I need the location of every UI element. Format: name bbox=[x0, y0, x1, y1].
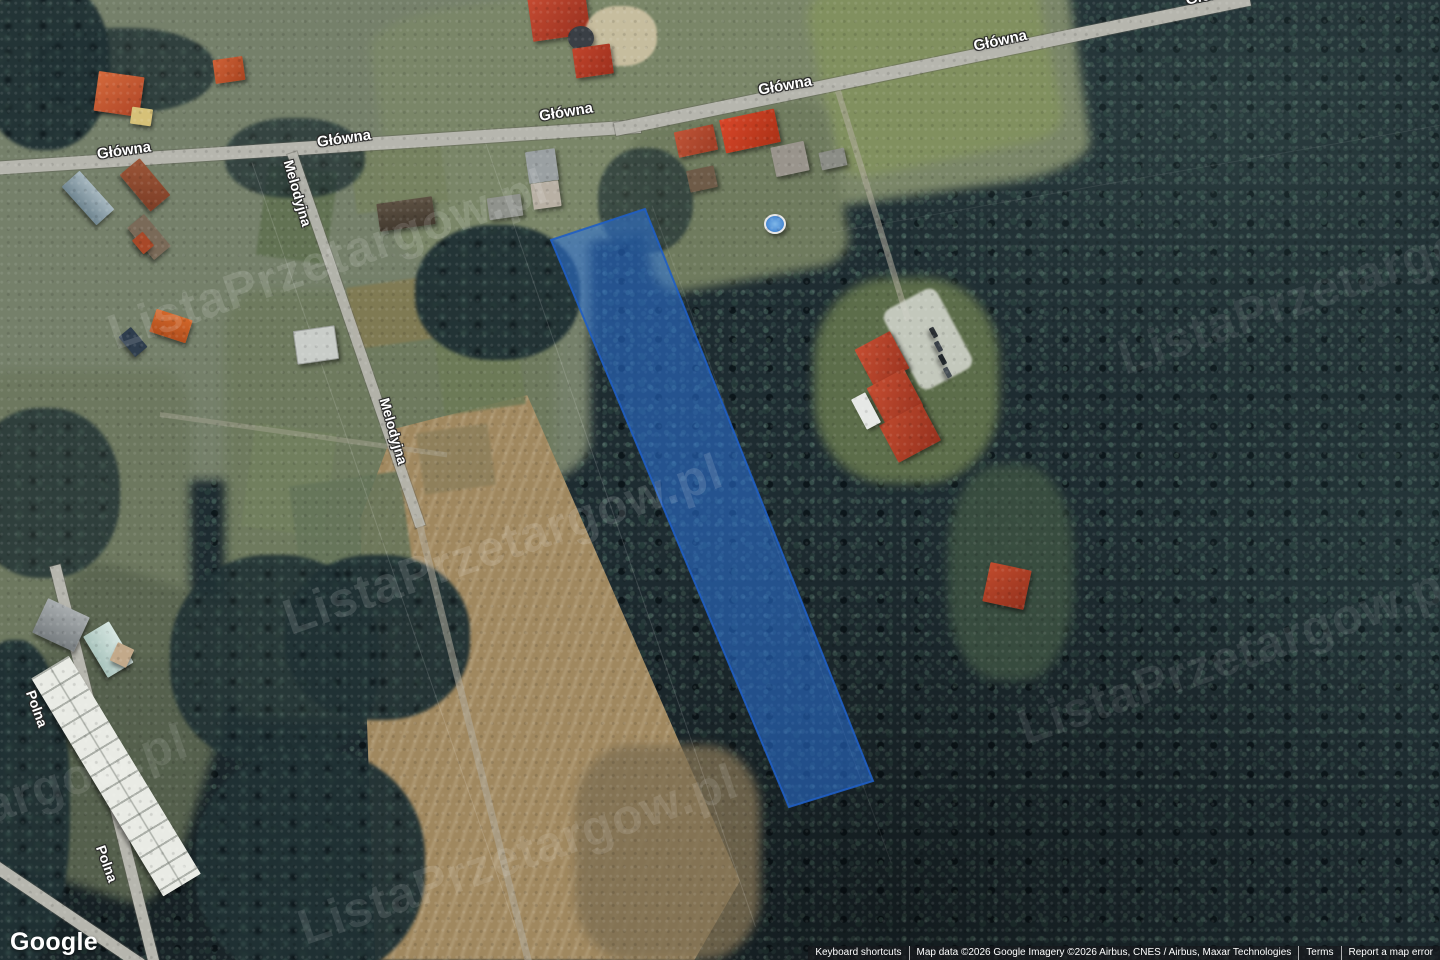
imagery-attribution-text: Imagery ©2026 Airbus, CNES / Airbus, Max… bbox=[1028, 947, 1291, 958]
report-map-error-link[interactable]: Report a map error bbox=[1341, 946, 1440, 960]
map-data-attribution: Map data ©2026 Google Imagery ©2026 Airb… bbox=[909, 946, 1299, 960]
keyboard-shortcuts-button[interactable]: Keyboard shortcuts bbox=[808, 946, 908, 960]
terms-link[interactable]: Terms bbox=[1298, 946, 1340, 960]
highlighted-parcel[interactable] bbox=[0, 0, 1440, 960]
map-data-text: Map data ©2026 Google bbox=[917, 947, 1026, 958]
google-logo[interactable]: Google bbox=[10, 928, 98, 957]
map-canvas[interactable]: ListaPrzetargow.pl ListaPrzetargow.pl Li… bbox=[0, 0, 1440, 960]
parcel-polygon[interactable] bbox=[551, 209, 873, 807]
attribution-bar: Keyboard shortcuts Map data ©2026 Google… bbox=[808, 946, 1440, 960]
